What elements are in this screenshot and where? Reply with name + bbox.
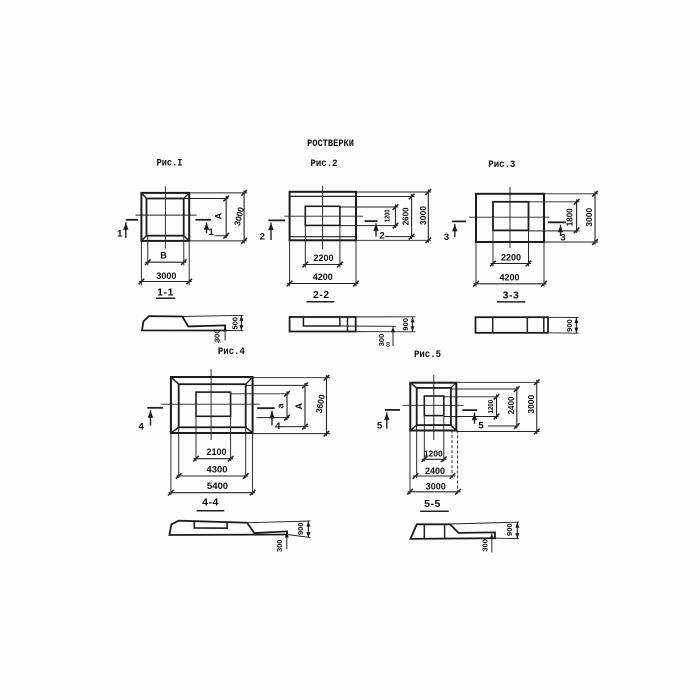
svg-text:2: 2 bbox=[379, 230, 384, 241]
svg-text:5: 5 bbox=[377, 421, 383, 432]
svg-text:4-4: 4-4 bbox=[202, 497, 219, 509]
svg-text:2200: 2200 bbox=[501, 253, 521, 263]
svg-text:5: 5 bbox=[478, 421, 484, 432]
svg-text:3000: 3000 bbox=[584, 208, 594, 227]
svg-text:900: 900 bbox=[401, 318, 410, 331]
svg-text:2400: 2400 bbox=[425, 466, 445, 476]
svg-text:300: 300 bbox=[275, 540, 284, 553]
svg-text:1200: 1200 bbox=[385, 209, 392, 222]
svg-text:3000: 3000 bbox=[156, 271, 176, 281]
svg-text:B: B bbox=[160, 251, 167, 261]
svg-text:900: 900 bbox=[296, 523, 305, 536]
svg-text:1200: 1200 bbox=[486, 400, 495, 414]
svg-text:1: 1 bbox=[209, 227, 215, 238]
svg-text:A: A bbox=[294, 403, 304, 410]
svg-text:2600: 2600 bbox=[402, 207, 411, 225]
svg-text:4200: 4200 bbox=[499, 273, 519, 283]
svg-text:A: A bbox=[213, 212, 223, 219]
svg-text:1200: 1200 bbox=[424, 449, 443, 459]
svg-text:500: 500 bbox=[231, 317, 240, 330]
svg-text:Рис.2: Рис.2 bbox=[311, 158, 338, 170]
svg-text:3000: 3000 bbox=[526, 394, 536, 413]
svg-text:Рис.4: Рис.4 bbox=[218, 346, 245, 358]
svg-text:8: 8 bbox=[386, 340, 390, 349]
svg-text:м: м bbox=[216, 338, 221, 345]
svg-text:900: 900 bbox=[505, 523, 514, 536]
svg-text:5-5: 5-5 bbox=[424, 498, 441, 510]
svg-text:2: 2 bbox=[260, 232, 265, 243]
svg-text:4200: 4200 bbox=[313, 272, 333, 282]
svg-text:Рис.I: Рис.I bbox=[157, 158, 183, 170]
svg-text:3000: 3000 bbox=[426, 481, 446, 491]
svg-text:2200: 2200 bbox=[313, 253, 333, 263]
svg-text:900: 900 bbox=[565, 319, 574, 332]
svg-text:3-3: 3-3 bbox=[503, 290, 520, 302]
svg-text:1: 1 bbox=[117, 229, 123, 240]
svg-text:Рис.5: Рис.5 bbox=[414, 349, 441, 361]
svg-text:5400: 5400 bbox=[207, 481, 228, 492]
svg-text:Рис.3: Рис.3 bbox=[488, 159, 515, 171]
svg-text:300: 300 bbox=[377, 334, 386, 347]
svg-text:3000: 3000 bbox=[418, 206, 428, 225]
svg-text:4300: 4300 bbox=[206, 464, 227, 475]
svg-text:2-2: 2-2 bbox=[313, 289, 330, 301]
svg-text:2100: 2100 bbox=[206, 447, 226, 457]
svg-text:РОСТВЕРКИ: РОСТВЕРКИ bbox=[307, 138, 354, 150]
svg-text:300: 300 bbox=[481, 539, 490, 552]
svg-text:1800: 1800 bbox=[566, 208, 575, 226]
svg-text:2400: 2400 bbox=[507, 396, 516, 414]
svg-text:1-1: 1-1 bbox=[157, 286, 174, 298]
svg-text:4: 4 bbox=[139, 422, 145, 433]
svg-text:3: 3 bbox=[444, 232, 449, 243]
